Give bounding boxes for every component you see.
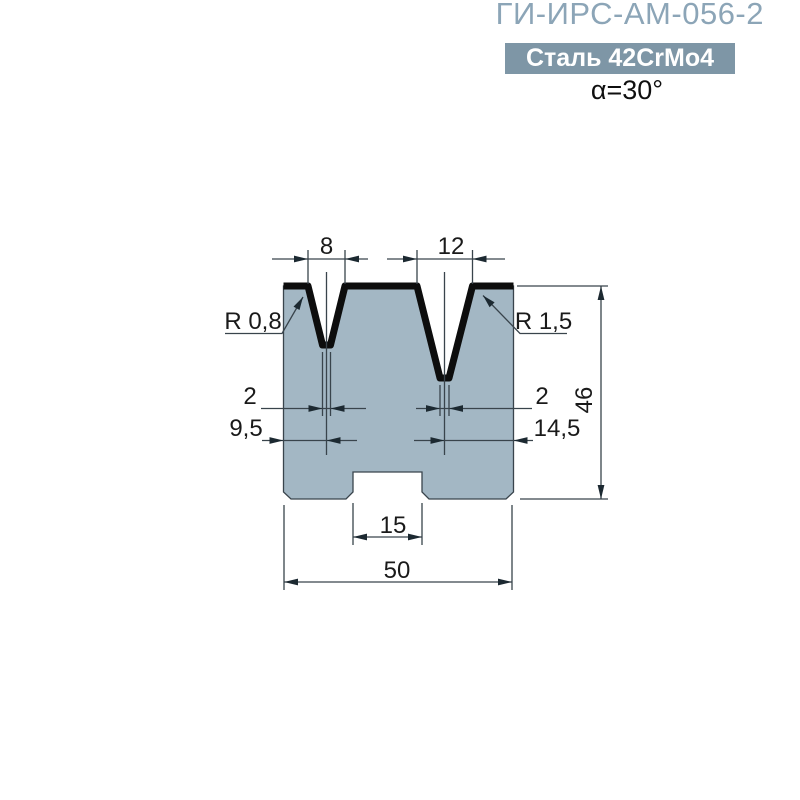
arrow (498, 579, 512, 586)
dim-v1-bottom: 2 (243, 383, 256, 410)
dim-v2-width: 12 (438, 233, 465, 260)
dim-v1-width: 8 (320, 233, 333, 260)
arrow (408, 534, 422, 541)
arrow (284, 579, 298, 586)
dim-slot-width: 15 (380, 512, 407, 539)
dim-overall-width: 50 (384, 557, 411, 584)
arrow (345, 256, 359, 263)
arrow (514, 437, 528, 444)
dim-v2-offset: 14,5 (534, 415, 581, 442)
arrow (353, 534, 367, 541)
arrow (294, 256, 308, 263)
technical-drawing: 8 12 R 0,8 R 1,5 2 2 9,5 14,5 46 15 50 (0, 0, 800, 800)
dim-v1-radius: R 0,8 (224, 308, 281, 335)
page: ГИ-ИРС-АМ-056-2 Сталь 42CrMo4 α=30° (0, 0, 800, 800)
arrow (598, 485, 605, 499)
dim-v1-offset: 9,5 (229, 415, 262, 442)
arrow (270, 437, 284, 444)
dim-height: 46 (571, 387, 598, 414)
arrow (473, 256, 487, 263)
arrow (598, 286, 605, 300)
dim-v2-radius: R 1,5 (515, 308, 572, 335)
arrow (403, 256, 417, 263)
dim-v2-bottom: 2 (535, 383, 548, 410)
